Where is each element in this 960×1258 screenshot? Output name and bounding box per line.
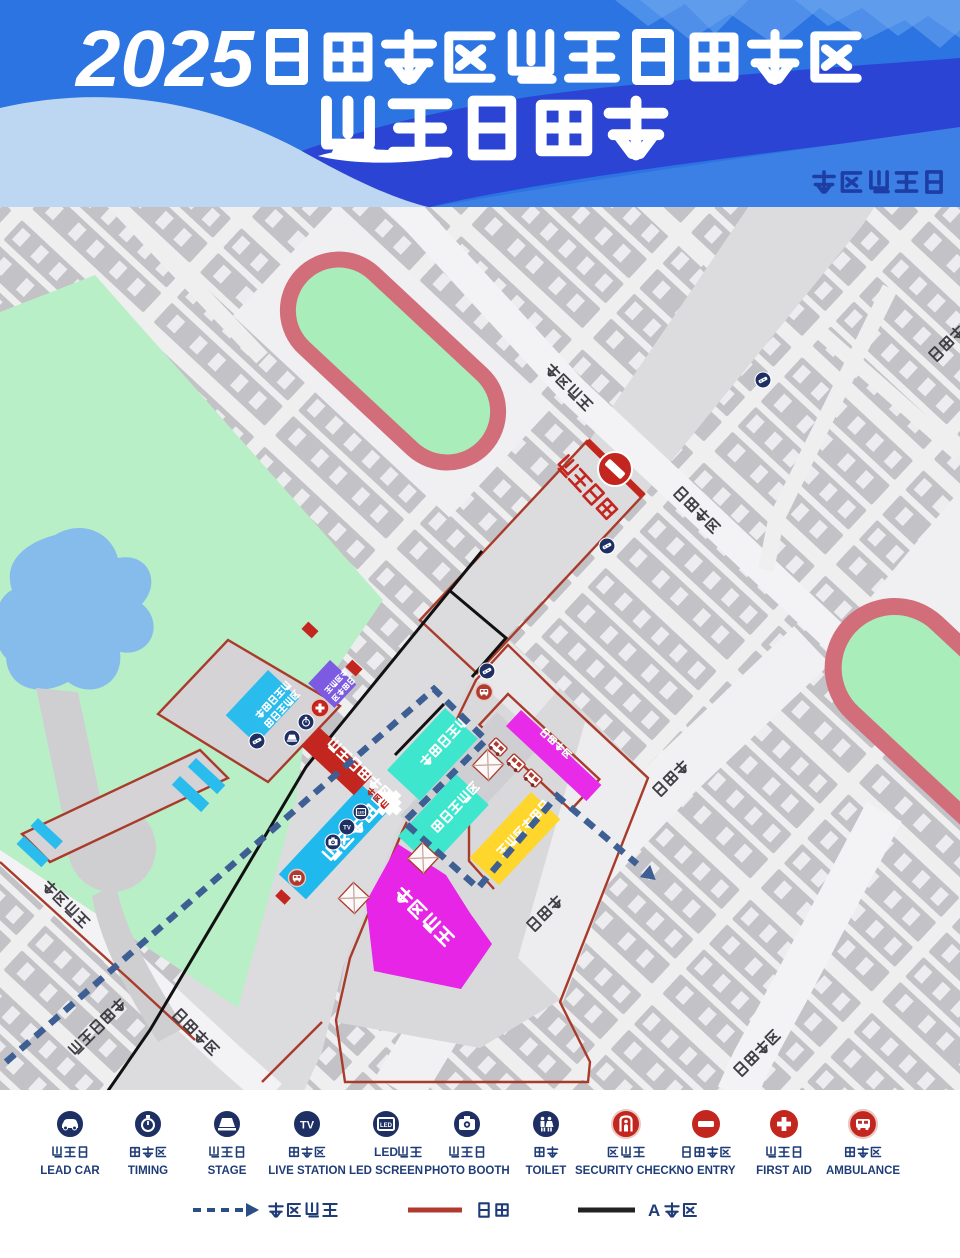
svg-text:SECURITY CHECK: SECURITY CHECK	[575, 1165, 678, 1177]
svg-text:LIVE STATION: LIVE STATION	[268, 1165, 346, 1177]
svg-text:NO ENTRY: NO ENTRY	[677, 1165, 736, 1177]
svg-text:2025: 2025	[74, 14, 255, 103]
svg-text:TV: TV	[343, 826, 351, 832]
svg-text:FIRST AID: FIRST AID	[756, 1165, 812, 1177]
svg-text:PHOTO BOOTH: PHOTO BOOTH	[424, 1165, 509, 1177]
svg-text:STAGE: STAGE	[208, 1165, 247, 1177]
svg-text:A: A	[648, 1201, 660, 1220]
svg-text:LED: LED	[358, 811, 365, 815]
svg-text:AMBULANCE: AMBULANCE	[826, 1165, 900, 1177]
svg-text:LED: LED	[380, 1123, 393, 1129]
svg-text:LED SCREEN: LED SCREEN	[349, 1165, 423, 1177]
svg-text:TV: TV	[300, 1120, 315, 1132]
svg-text:TIMING: TIMING	[128, 1165, 168, 1177]
svg-text:TOILET: TOILET	[526, 1165, 567, 1177]
svg-text:LED: LED	[374, 1145, 398, 1159]
svg-text:LEAD CAR: LEAD CAR	[40, 1165, 100, 1177]
